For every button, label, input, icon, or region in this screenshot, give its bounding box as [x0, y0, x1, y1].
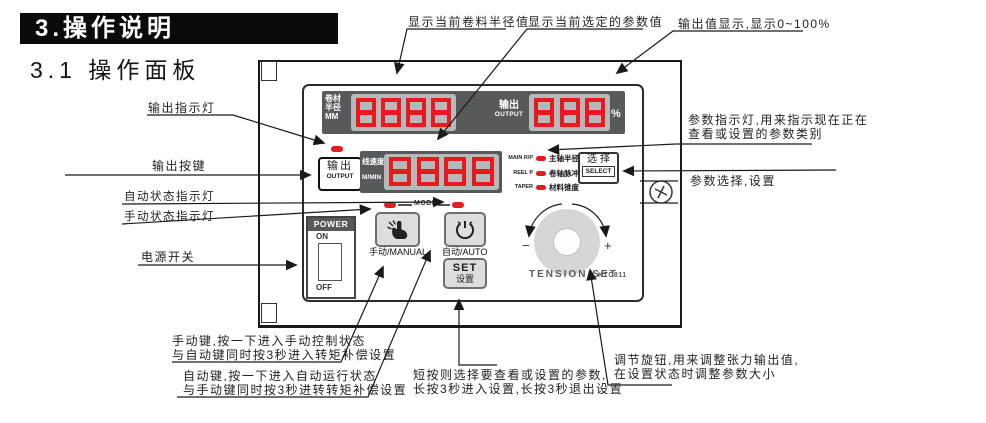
auto-button-label: 自动/AUTO [442, 245, 487, 258]
param-led-row-taper: TAPER 材料锥度 [499, 181, 579, 193]
power-rocker[interactable] [318, 243, 342, 281]
seven-segment-digit [381, 98, 401, 127]
seven-segment-digit [560, 98, 580, 127]
output-display-label: 输出 OUTPUT [492, 100, 526, 119]
seven-segment-digit [534, 98, 554, 127]
taper-led [536, 185, 546, 190]
manual-button[interactable] [375, 212, 420, 247]
callout-auto-status: 自动状态指示灯 [124, 190, 215, 204]
callout-manual-key: 手动键,按一下进入手动控制状态 与自动键同时按3秒进入转矩补偿设置 [172, 334, 396, 362]
power-cycle-icon [454, 219, 476, 241]
output-button[interactable]: 输出 OUTPUT [318, 157, 362, 191]
seven-segment-digit [585, 98, 605, 127]
model-label: KTC811 [598, 272, 627, 279]
auto-button[interactable] [444, 212, 486, 247]
subsection-title: 3.1 操作面板 [30, 51, 200, 85]
main-rp-led [536, 156, 546, 161]
tension-knob-cap [553, 228, 581, 256]
seven-segment-digit [431, 98, 451, 127]
frame-tab-bottom [261, 303, 277, 323]
callout-output-indicator: 输出指示灯 [148, 101, 216, 115]
knob-plus-label: + [604, 238, 612, 253]
reel-p-led [536, 171, 546, 176]
callout-auto-key: 自动键,按一下进入自动运行状态 与手动键同时按3秒进转转矩补偿设置 [183, 369, 407, 397]
callout-manual-status: 手动状态指示灯 [124, 210, 215, 224]
manual-button-label: 手动/MANUAL [369, 245, 427, 258]
mode-led-auto [452, 202, 464, 208]
mode-label: MODE [414, 200, 437, 207]
seven-segment-digit [472, 157, 494, 187]
output-led [331, 146, 343, 152]
hand-icon [386, 219, 410, 241]
frame-tab-top [261, 61, 277, 81]
callout-roll-radius: 显示当前卷料半径值 [408, 15, 530, 29]
radius-digits [351, 94, 456, 131]
power-off-label: OFF [308, 282, 354, 293]
set-button[interactable]: SET 设置 [443, 258, 487, 289]
seven-segment-digit [356, 98, 376, 127]
knob-minus-label: − [522, 238, 530, 253]
power-switch-title: POWER [308, 218, 354, 231]
callout-param-indicator: 参数指示灯,用来指示现在正在 查看或设置的参数类别 [688, 113, 868, 141]
callout-output-key: 输出按键 [152, 159, 206, 173]
callout-set-key: 短按则选择要查看或设置的参数, 长按3秒进入设置,长按3秒退出设置 [413, 368, 623, 396]
speed-display-label-en: M/MIN [362, 174, 381, 181]
callout-output-value: 输出值显示,显示0~100% [678, 17, 831, 31]
power-switch: POWER ON OFF [306, 216, 356, 299]
callout-param-select: 参数选择,设置 [690, 174, 776, 188]
callout-power-switch: 电源开关 [141, 250, 195, 264]
select-button[interactable]: 选择 SELECT [578, 152, 619, 184]
callout-selected-param: 显示当前选定的参数值 [528, 15, 663, 29]
param-led-row-reel: REEL P 卷轴脉冲 [499, 167, 579, 179]
seven-segment-digit [406, 98, 426, 127]
output-digits [529, 94, 610, 131]
speed-display-label-zh: 线速度 [362, 156, 385, 167]
seven-segment-digit [444, 157, 466, 187]
section-title: 3.操作说明 [20, 13, 338, 44]
manual-page: 3.操作说明 3.1 操作面板 显示当前卷料半径值 显示当前选定的参数值 输出值… [0, 0, 986, 423]
seven-segment-digit [389, 157, 411, 187]
mode-led-manual [384, 202, 396, 208]
callout-knob: 调节旋钮,用来调整张力输出值, 在设置状态时调整参数大小 [614, 353, 799, 381]
percent-sign: % [611, 108, 621, 120]
speed-digits [384, 154, 499, 190]
radius-display-label: 卷材 半径 MM [325, 94, 341, 121]
seven-segment-digit [417, 157, 439, 187]
power-on-label: ON [308, 231, 354, 242]
